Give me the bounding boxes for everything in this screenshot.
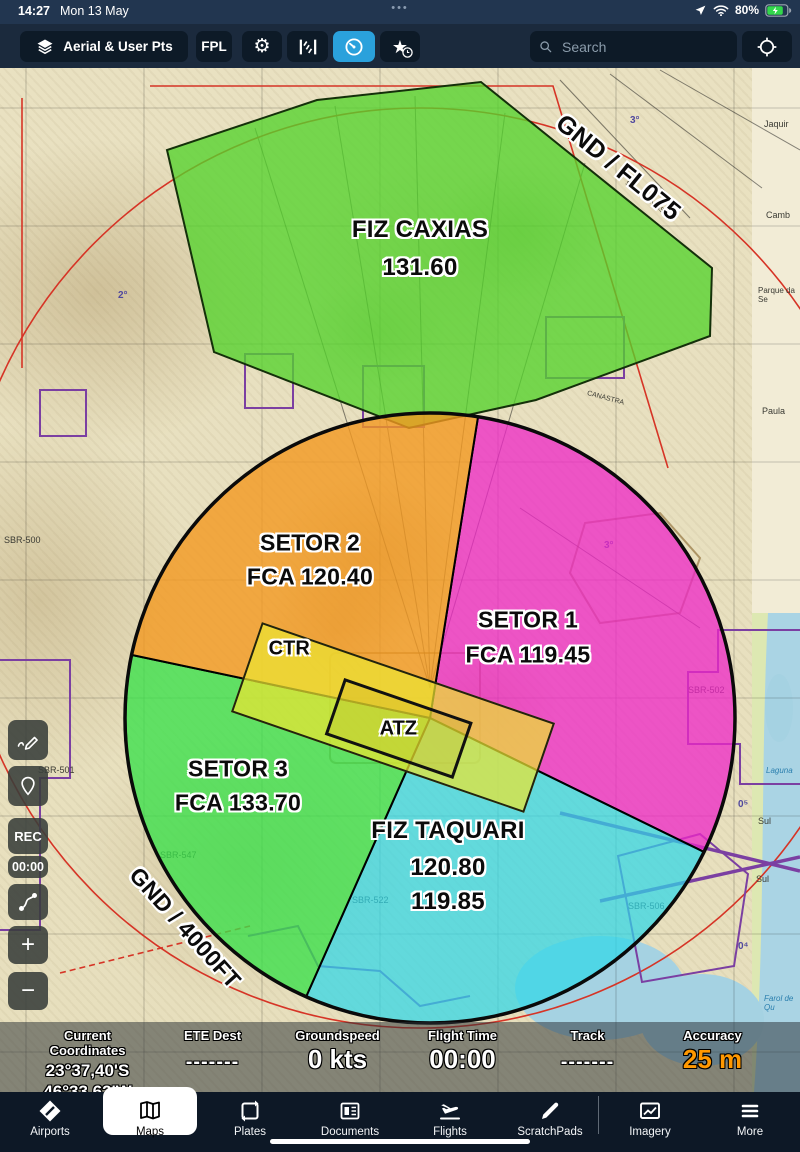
search-input[interactable]	[560, 38, 720, 56]
flights-plane-icon	[437, 1099, 463, 1123]
clock: 14:27	[18, 4, 50, 18]
setor2-name: SETOR 2	[260, 530, 360, 557]
instruments-button[interactable]	[333, 31, 375, 62]
profile-view-button[interactable]	[287, 31, 328, 62]
center-location-button[interactable]	[742, 31, 792, 62]
fiz-taquari-freq2: 119.85	[411, 888, 485, 916]
imagery-chart-icon	[637, 1099, 663, 1123]
gear-icon: ⚙	[253, 35, 270, 58]
fiz-taquari-name: FIZ TAQUARI	[371, 817, 525, 845]
fiz-caxias-freq: 131.60	[382, 254, 457, 282]
wifi-icon	[713, 4, 729, 16]
layers-icon	[35, 37, 55, 57]
tab-maps[interactable]: Maps	[100, 1092, 200, 1152]
ete-dest: ETE Dest -------	[150, 1028, 275, 1092]
map-pin-icon	[17, 774, 39, 798]
efb-app-screen: 14:27 Mon 13 May ••• 80%	[0, 0, 800, 1152]
settings-button[interactable]: ⚙	[242, 31, 282, 62]
draw-pencil-icon	[16, 728, 40, 752]
search-field[interactable]	[530, 31, 737, 62]
documents-icon	[338, 1099, 362, 1123]
track: Track -------	[525, 1028, 650, 1092]
more-menu-icon	[738, 1099, 762, 1123]
battery-percent: 80%	[735, 3, 759, 17]
setor1-name: SETOR 1	[478, 607, 578, 634]
tab-imagery[interactable]: Imagery	[600, 1092, 700, 1152]
fiz-taquari-freq1: 120.80	[410, 854, 485, 882]
atz-label: ATZ	[380, 717, 417, 740]
tab-airports[interactable]: Airports	[0, 1092, 100, 1152]
accuracy: Accuracy 25 m	[650, 1028, 775, 1092]
star-clock-icon: ★	[392, 38, 408, 56]
scratchpad-pencil-icon	[538, 1099, 562, 1123]
zoom-in-button[interactable]: +	[8, 926, 48, 964]
route-waypoints-icon	[16, 890, 40, 914]
fiz-caxias-name: FIZ CAXIAS	[352, 216, 488, 244]
profile-icon	[297, 36, 319, 58]
moving-map[interactable]: SBR-500 SBR-501 SBR-502 SBR-506 SBR-522 …	[0, 68, 800, 1092]
search-icon	[538, 39, 554, 55]
tab-more[interactable]: More	[700, 1092, 800, 1152]
airport-beacon-icon	[38, 1099, 62, 1123]
map-layers-label: Aerial & User Pts	[63, 39, 173, 54]
status-bar: 14:27 Mon 13 May ••• 80%	[0, 0, 800, 24]
fpl-button[interactable]: FPL	[196, 31, 232, 62]
dropped-pin-button[interactable]	[8, 766, 48, 806]
plates-rotate-icon	[238, 1099, 262, 1123]
flight-time: Flight Time 00:00	[400, 1028, 525, 1092]
current-coordinates: Current Coordinates 23°37,40'S 46°33,62'…	[25, 1028, 150, 1092]
setor3-freq: FCA 133.70	[175, 790, 301, 817]
home-indicator[interactable]	[270, 1139, 530, 1144]
record-track-button[interactable]: REC	[8, 818, 48, 854]
status-overflow-dots-icon: •••	[391, 2, 409, 14]
coordinates-lat: 23°37,40'S	[25, 1060, 150, 1081]
tab-bar-divider	[598, 1096, 599, 1134]
favorites-recent-button[interactable]: ★	[380, 31, 420, 62]
annotate-button[interactable]	[8, 720, 48, 760]
battery-icon	[765, 4, 792, 17]
record-timer: 00:00	[8, 856, 48, 878]
setor2-freq: FCA 120.40	[247, 564, 373, 591]
groundspeed: Groundspeed 0 kts	[275, 1028, 400, 1092]
location-arrow-icon	[694, 4, 707, 17]
setor1-freq: FCA 119.45	[466, 642, 591, 669]
map-layers-button[interactable]: Aerial & User Pts	[20, 31, 188, 62]
date: Mon 13 May	[60, 4, 129, 18]
crosshair-locate-icon	[756, 36, 778, 58]
flight-instruments-bar: Current Coordinates 23°37,40'S 46°33,62'…	[0, 1022, 800, 1092]
setor3-name: SETOR 3	[188, 756, 288, 783]
route-button[interactable]	[8, 884, 48, 920]
zoom-out-button[interactable]: −	[8, 972, 48, 1010]
gauge-icon	[343, 36, 365, 58]
map-toolbar: Aerial & User Pts FPL ⚙ ★	[0, 24, 800, 68]
folded-map-icon	[137, 1099, 163, 1123]
ctr-label: CTR	[269, 637, 310, 660]
